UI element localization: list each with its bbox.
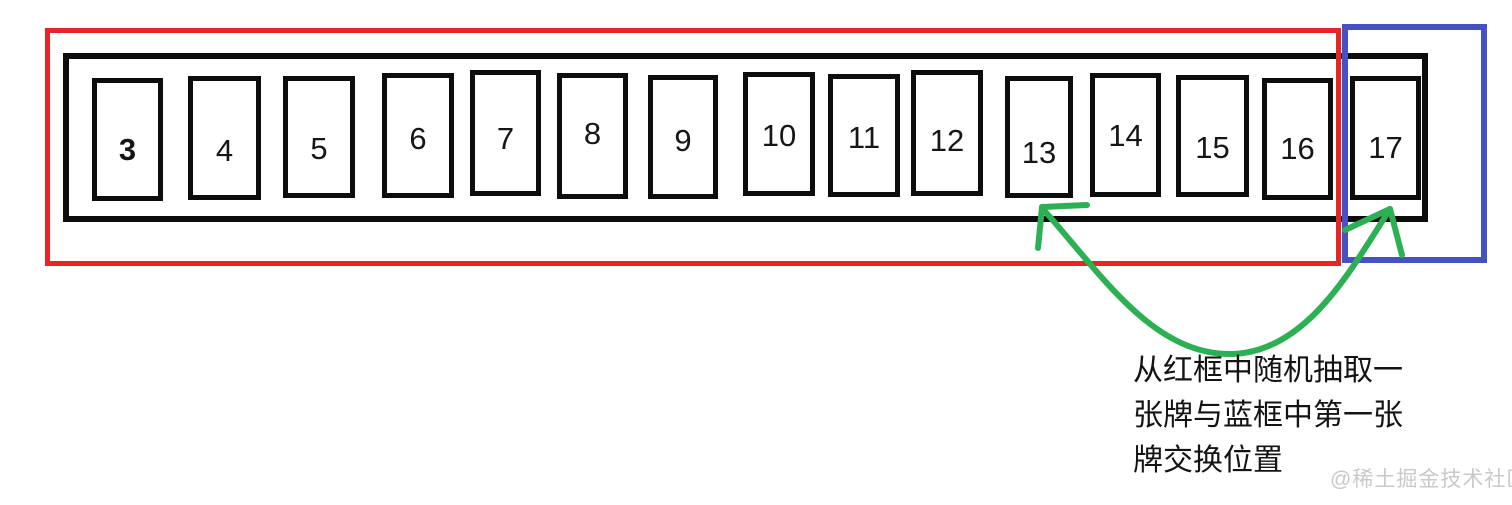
annotation-line: 张牌与蓝框中第一张 <box>1133 393 1403 438</box>
annotation-line: 从红框中随机抽取一 <box>1133 348 1403 393</box>
red-selection-frame <box>45 28 1341 266</box>
diagram-canvas: 34567891011121314151617 从红框中随机抽取一 张牌与蓝框中… <box>0 0 1512 505</box>
blue-selection-frame <box>1342 24 1487 263</box>
watermark-text: @稀土掘金技术社区 <box>1330 463 1512 493</box>
